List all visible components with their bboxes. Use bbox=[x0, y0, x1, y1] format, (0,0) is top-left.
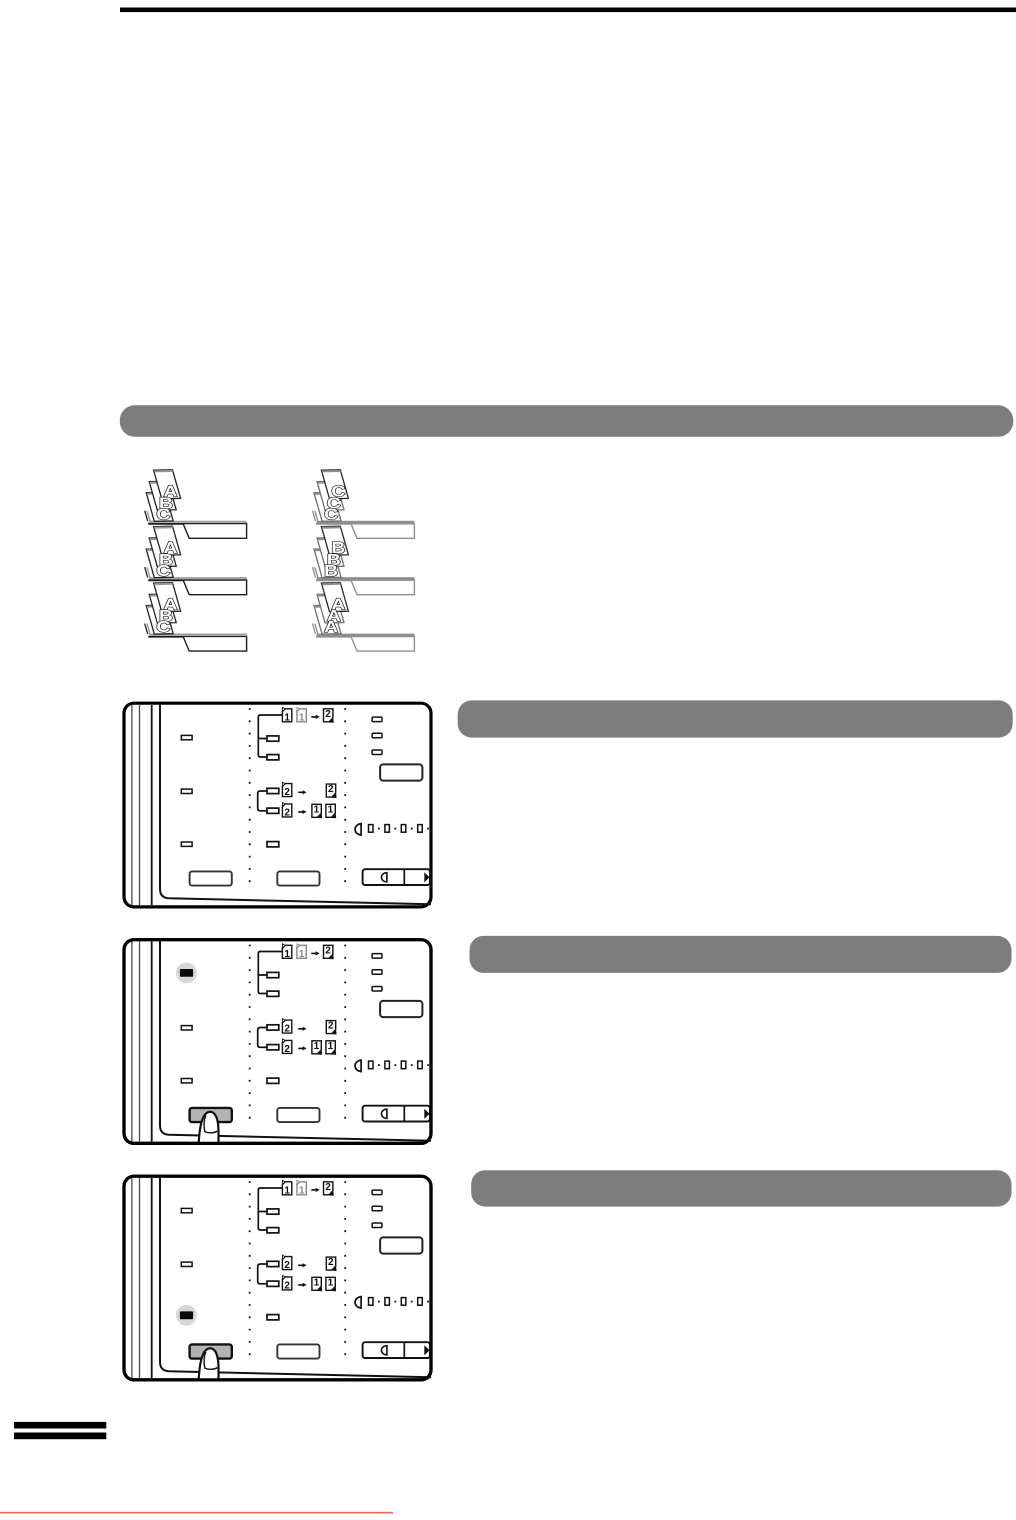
svg-text:C: C bbox=[156, 505, 170, 523]
svg-text:C: C bbox=[156, 618, 170, 636]
svg-text:A: A bbox=[324, 618, 338, 636]
svg-text:C: C bbox=[156, 562, 170, 580]
svg-text:B: B bbox=[324, 562, 338, 580]
svg-text:C: C bbox=[324, 505, 338, 523]
